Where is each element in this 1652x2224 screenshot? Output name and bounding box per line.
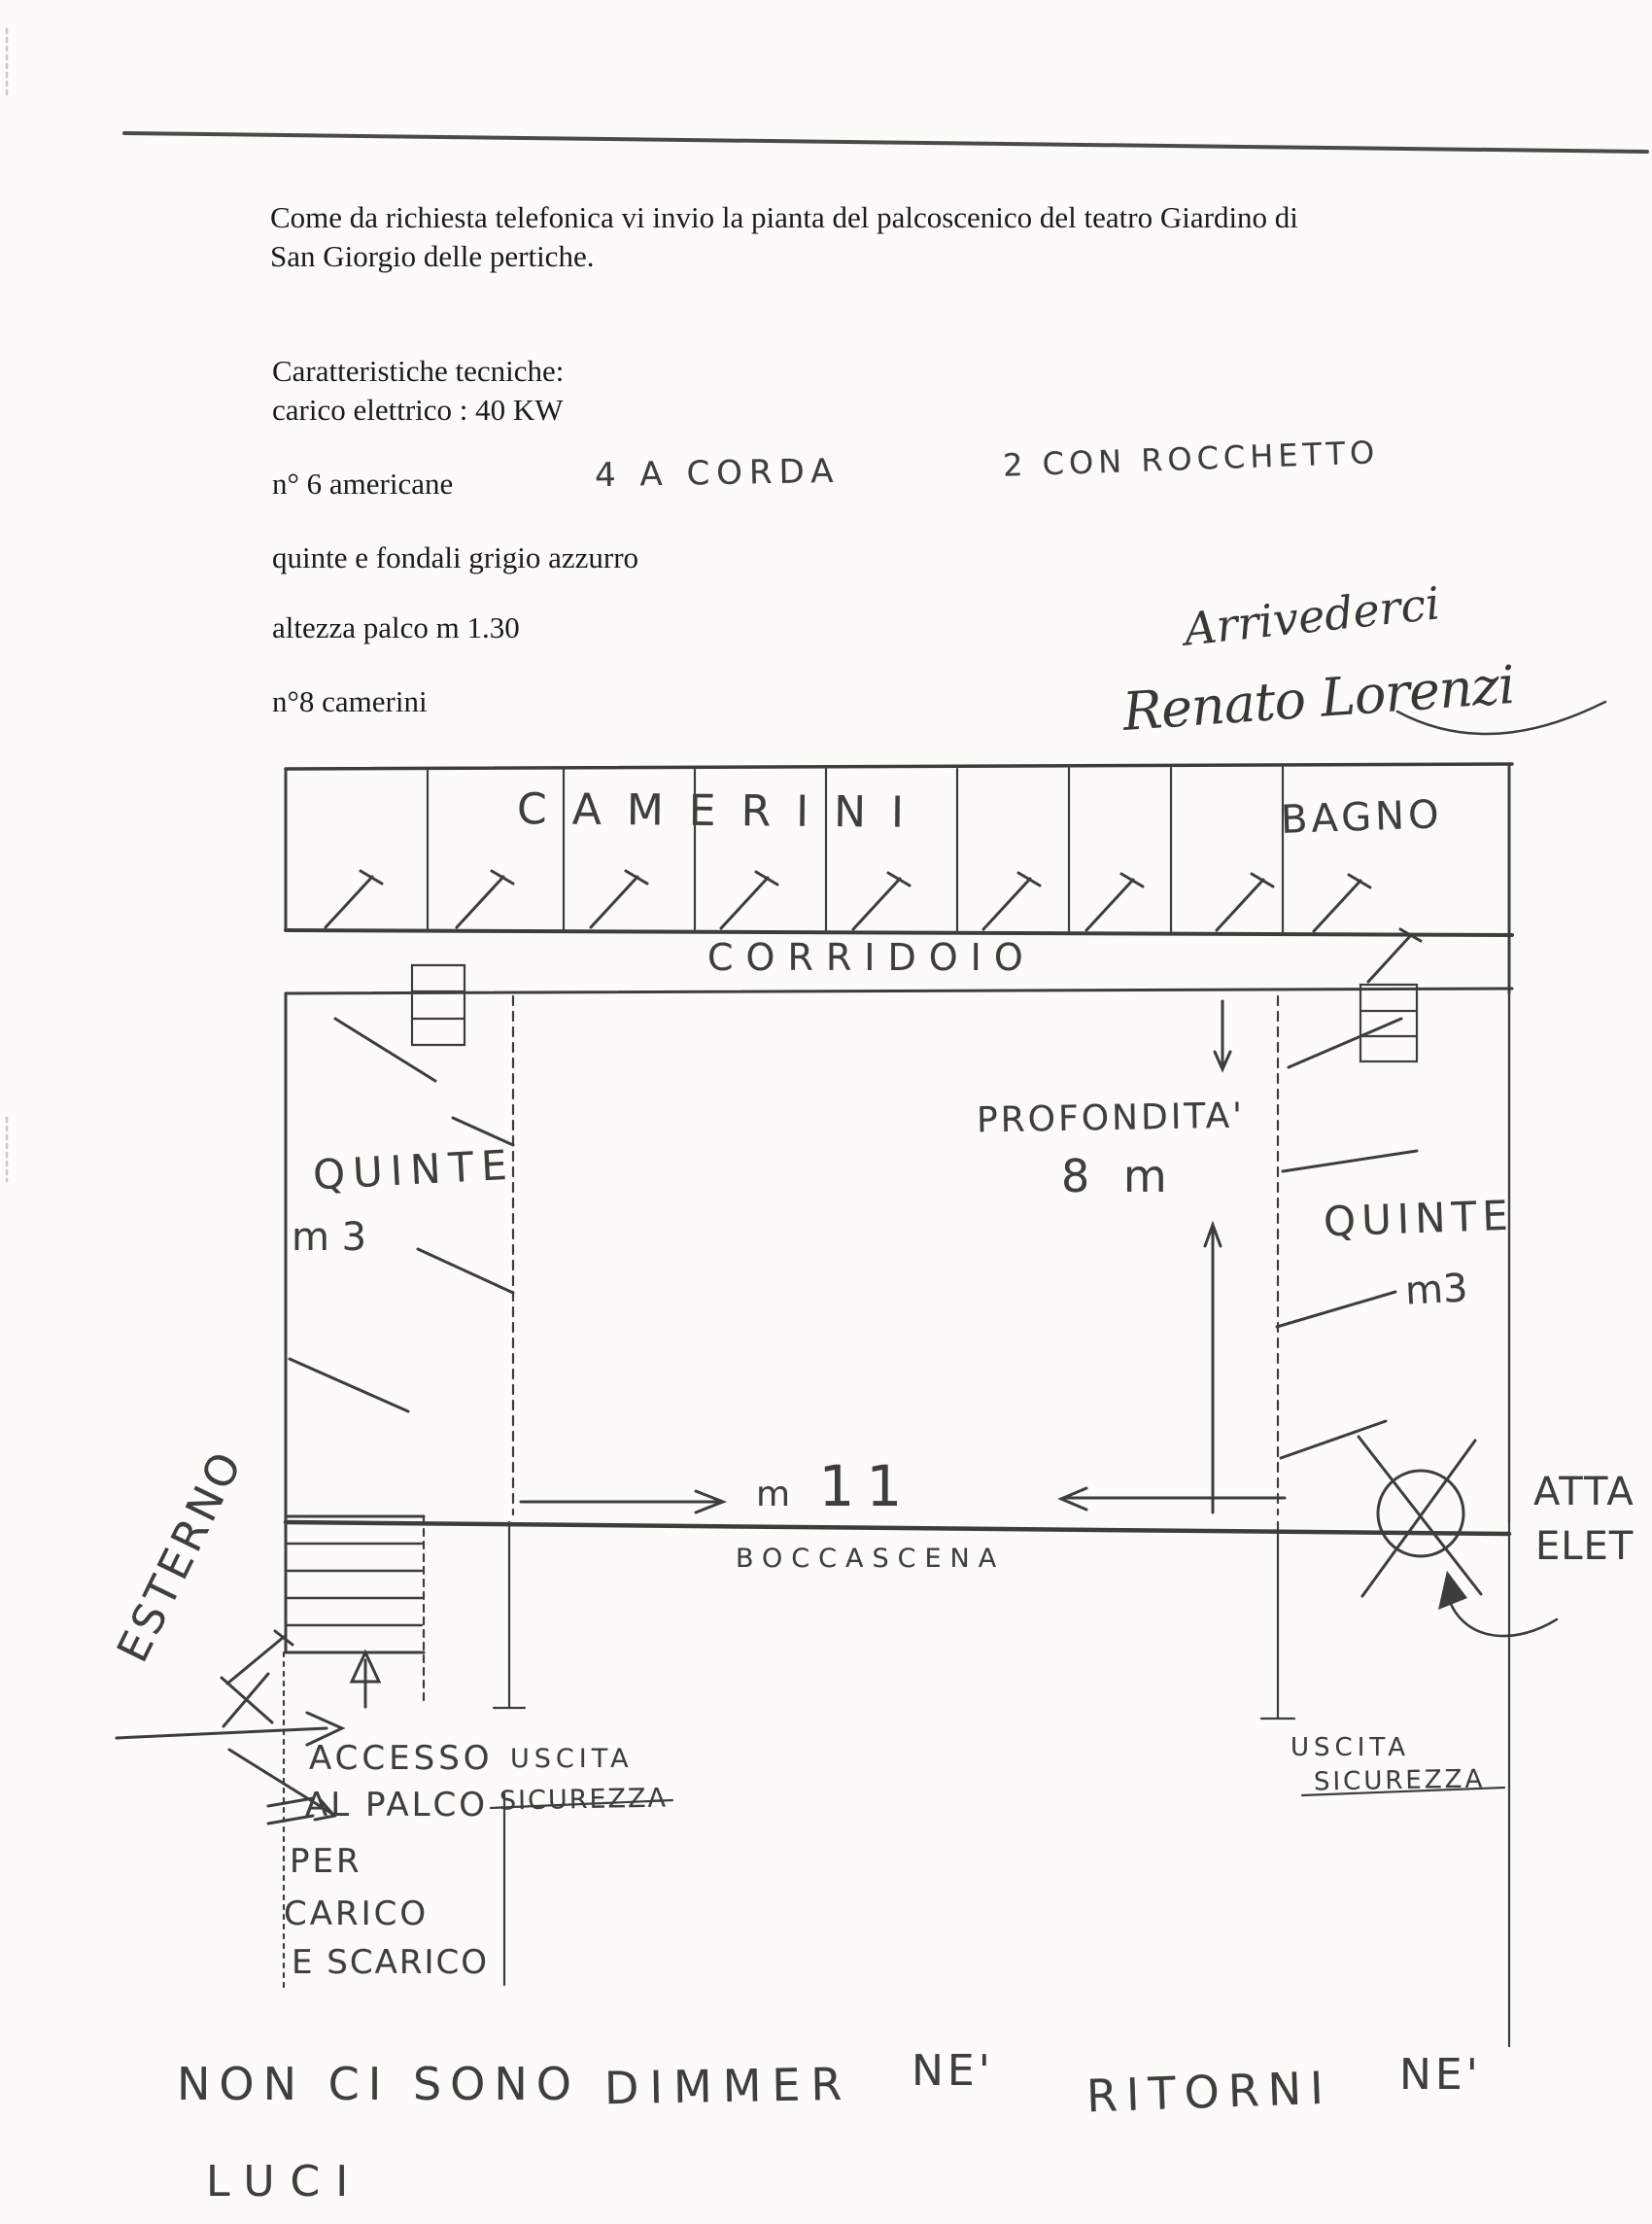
plan-label-quinte-right-size: m3 [1404, 1266, 1469, 1313]
plan-label-larghezza: m 11 [756, 1454, 913, 1519]
access-line-5: E SCARICO [292, 1944, 489, 1982]
plan-label-quinte-right: QUINTE [1323, 1193, 1514, 1246]
spec-americane: n° 6 americane [272, 467, 453, 502]
access-line-4: CARICO [284, 1895, 429, 1933]
access-line-2: AL PALCO [305, 1787, 488, 1824]
right-step-box [1360, 929, 1421, 1061]
hand-note-corda: 4 A CORDA [595, 453, 841, 495]
plan-label-bagno: BAGNO [1280, 792, 1443, 843]
intro-line-1: Come da richiesta telefonica vi invio la… [270, 200, 1298, 235]
intro-line-2: San Giorgio delle pertiche. [270, 239, 594, 274]
fax-separator-line [124, 133, 1647, 152]
left-step-box [412, 965, 465, 1045]
exit-left-line-2: SICUREZZA [499, 1783, 669, 1816]
exit-right-line-1: USCITA [1291, 1734, 1410, 1763]
spec-altezza-palco: altezza palco m 1.30 [272, 610, 520, 645]
electrical-symbol [1359, 1437, 1557, 1636]
larghezza-value: 11 [819, 1453, 914, 1519]
exit-left-line-1: USCITA [510, 1744, 634, 1774]
stage-plan-drawing [0, 0, 1652, 2224]
plan-label-profondita: PROFONDITA' [977, 1096, 1246, 1141]
plan-label-camerini: CAMERINI [517, 785, 929, 838]
exit-right-line-2: SICUREZZA [1314, 1765, 1486, 1797]
plan-label-boccascena: BOCCASCENA [736, 1544, 1005, 1574]
bottom-note-part-1: NON CI SONO [177, 2059, 580, 2110]
door-swing-marks [326, 871, 1370, 931]
corridor-down-arrow [1215, 1001, 1230, 1069]
bottom-note-part-5: NE' [1399, 2051, 1482, 2101]
plan-label-profondita-value: 8 m [1061, 1151, 1177, 1202]
access-arrow [117, 1728, 327, 1738]
spec-carico-elettrico: carico elettrico : 40 KW [272, 393, 564, 428]
scanned-letter-page: Come da richiesta telefonica vi invio la… [0, 0, 1652, 2224]
stairs-up-arrow [352, 1652, 379, 1707]
power-label-line-2: ELET [1535, 1524, 1634, 1569]
bottom-note-line-2: LUCI [206, 2158, 363, 2207]
plan-label-corridoio: CORRIDOIO [707, 937, 1036, 980]
bottom-note-part-3: NE' [912, 2047, 994, 2097]
curved-pointer-arrow [1450, 1602, 1557, 1636]
access-line-1: ACCESSO [309, 1740, 494, 1778]
access-line-3: PER [290, 1843, 362, 1881]
power-label-line-1: ATTA [1533, 1470, 1635, 1514]
spec-quinte-fondali: quinte e fondali grigio azzurro [272, 540, 638, 575]
tech-specs-title: Caratteristiche tecniche: [272, 354, 564, 389]
bottom-note-part-4: RITORNI [1085, 2063, 1332, 2123]
boccascena-line [286, 1522, 1509, 1534]
spec-camerini: n°8 camerini [272, 684, 428, 719]
depth-arrow [1205, 1225, 1221, 1512]
plan-label-quinte-left-size: m 3 [292, 1215, 366, 1260]
larghezza-unit: m [756, 1475, 790, 1514]
bottom-note-part-2: DIMMER [604, 2059, 853, 2114]
